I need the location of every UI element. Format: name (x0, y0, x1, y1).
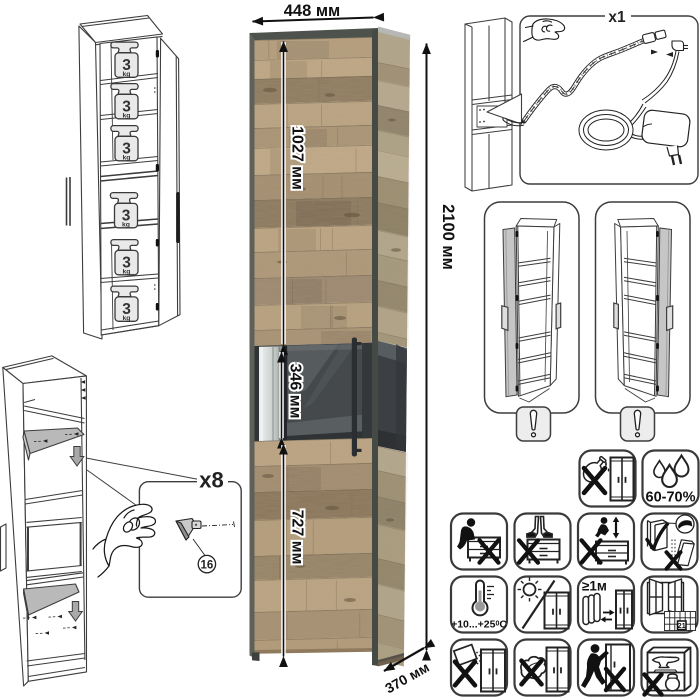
svg-text:21: 21 (678, 621, 686, 630)
svg-text:x1: x1 (608, 9, 626, 26)
svg-text:16: 16 (201, 559, 214, 571)
svg-text:2100 мм: 2100 мм (439, 204, 457, 270)
svg-text:1027 мм: 1027 мм (289, 126, 306, 190)
svg-text:≥1м: ≥1м (582, 579, 607, 594)
svg-text:727 мм: 727 мм (289, 510, 306, 565)
svg-text:+10...+250C: +10...+250C (451, 619, 507, 631)
svg-text:60-70%: 60-70% (646, 490, 696, 506)
svg-text:346 мм: 346 мм (287, 364, 304, 419)
svg-text:448 мм: 448 мм (284, 2, 341, 20)
svg-text:x8: x8 (199, 468, 223, 493)
